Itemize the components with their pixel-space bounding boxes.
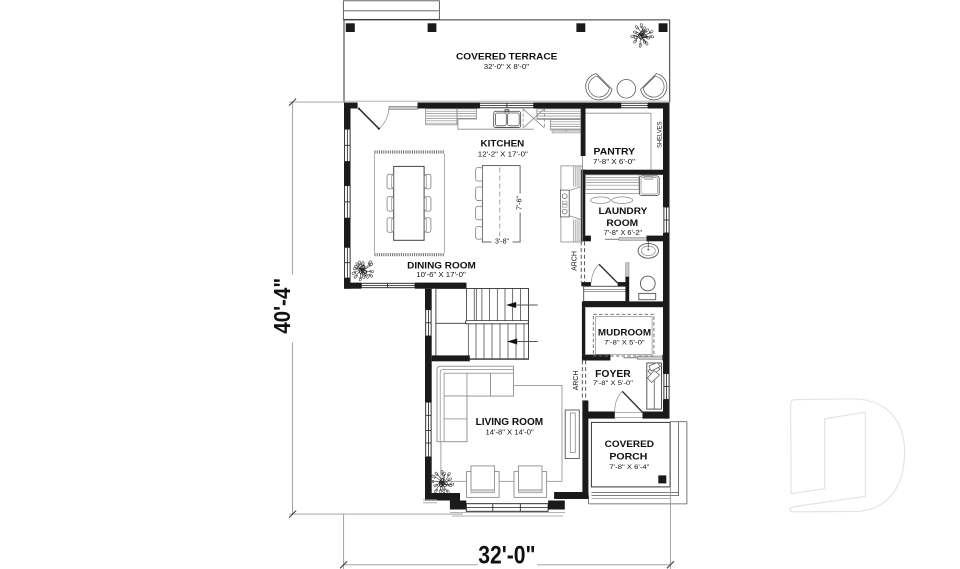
svg-text:DINING ROOM: DINING ROOM — [407, 259, 476, 270]
svg-text:LAUNDRY: LAUNDRY — [599, 205, 649, 216]
svg-text:7'-8" X 6'-0": 7'-8" X 6'-0" — [593, 159, 636, 166]
svg-text:7'-8" X 5'-0": 7'-8" X 5'-0" — [604, 340, 645, 347]
svg-text:ARCH: ARCH — [573, 371, 580, 391]
svg-text:KITCHEN: KITCHEN — [481, 137, 525, 148]
svg-text:COVERED TERRACE: COVERED TERRACE — [456, 51, 557, 62]
svg-text:7'-6": 7'-6" — [516, 196, 523, 210]
svg-text:10'-6" X 17'-0": 10'-6" X 17'-0" — [416, 272, 466, 279]
svg-text:7'-8" X 6'-2": 7'-8" X 6'-2" — [604, 230, 643, 237]
svg-text:3'-8": 3'-8" — [495, 239, 509, 246]
svg-text:COVERED: COVERED — [605, 439, 655, 449]
svg-text:PANTRY: PANTRY — [594, 146, 636, 157]
svg-text:14'-8" X 14'-0": 14'-8" X 14'-0" — [486, 430, 535, 437]
svg-text:FOYER: FOYER — [595, 369, 631, 380]
svg-text:40'-4": 40'-4" — [269, 278, 295, 334]
svg-text:LIVING ROOM: LIVING ROOM — [476, 417, 544, 428]
svg-text:ARCH: ARCH — [572, 251, 579, 271]
svg-text:ROOM: ROOM — [606, 217, 638, 228]
svg-text:PORCH: PORCH — [609, 451, 647, 461]
svg-text:SHELVES: SHELVES — [657, 121, 664, 148]
svg-text:12'-2" X 17'-0": 12'-2" X 17'-0" — [478, 151, 529, 158]
svg-text:7'-8" X 6'-4": 7'-8" X 6'-4" — [609, 464, 650, 471]
svg-text:7'-8" X 5'-0": 7'-8" X 5'-0" — [593, 380, 634, 387]
svg-text:32'-0" X 8'-0": 32'-0" X 8'-0" — [484, 64, 530, 71]
svg-text:32'-0": 32'-0" — [478, 543, 535, 569]
svg-text:MUDROOM: MUDROOM — [598, 327, 651, 337]
